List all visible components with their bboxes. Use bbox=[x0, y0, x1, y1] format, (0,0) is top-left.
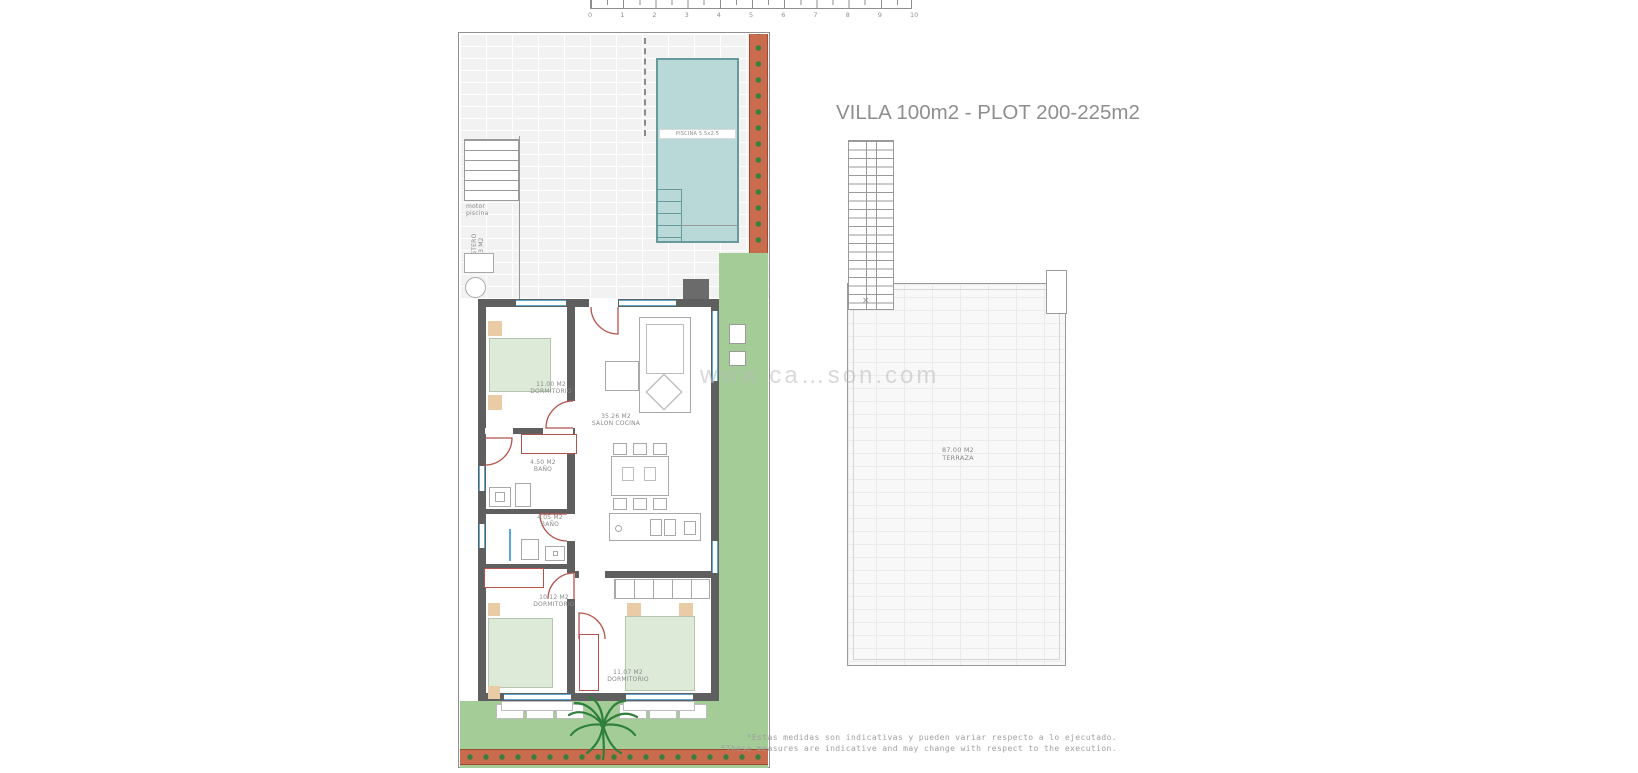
room-area: 11.07 M2 bbox=[593, 669, 663, 676]
disclaimer: *Estas medidas son indicativas y pueden … bbox=[721, 733, 1117, 754]
room-label-dormitorio-1: 11.00 M2 DORMITORIO bbox=[516, 381, 586, 395]
door-arc-bedroom3 bbox=[579, 613, 605, 639]
room-name: BAÑO bbox=[520, 521, 580, 528]
room-area: 11.00 M2 bbox=[516, 381, 586, 388]
scale-bar-numbers: 012345678910 bbox=[590, 0, 912, 20]
terrace-area: 87.00 M2 bbox=[918, 446, 998, 454]
room-area: 35.26 M2 bbox=[576, 413, 656, 420]
room-area: 10.12 M2 bbox=[519, 594, 589, 601]
floorplan-sheet: 012345678910 VILLA 100m2 - PLOT 200-225m… bbox=[0, 0, 1638, 773]
watermark: www.ca…son.com bbox=[700, 362, 939, 390]
door-arc-bath1 bbox=[485, 438, 512, 465]
room-name: BAÑO bbox=[513, 466, 573, 473]
stair-stringer bbox=[866, 141, 867, 309]
scale-number: 9 bbox=[878, 11, 882, 19]
scale-number: 6 bbox=[781, 11, 785, 19]
door-arc-entrance bbox=[591, 307, 618, 334]
terrace-name: TERRAZA bbox=[918, 454, 998, 462]
room-area: 4.05 M2 bbox=[520, 514, 580, 521]
scale-number: 4 bbox=[717, 11, 721, 19]
ground-floor-plan: PISCINA 5.5x2.5 motor piscina TRASTERO 2… bbox=[458, 32, 770, 768]
door-arc-bedroom1 bbox=[546, 401, 573, 428]
stair-stringer bbox=[876, 141, 877, 309]
terrace-step-notch bbox=[1046, 270, 1067, 314]
scale-number: 1 bbox=[620, 11, 624, 19]
roof-plan-terrace: 87.00 M2 TERRAZA bbox=[847, 283, 1066, 666]
scale-number: 7 bbox=[813, 11, 817, 19]
scale-number: 2 bbox=[652, 11, 656, 19]
stair-direction-mark: × bbox=[862, 296, 870, 306]
terrace-inner-line bbox=[853, 289, 1060, 660]
scale-number: 10 bbox=[910, 11, 918, 19]
room-label-dormitorio-3: 11.07 M2 DORMITORIO bbox=[593, 669, 663, 683]
room-label-bano-1: 4.50 M2 BAÑO bbox=[513, 459, 573, 473]
disclaimer-line-en: *These measures are indicative and may c… bbox=[721, 744, 1117, 755]
room-name: DORMITORIO bbox=[593, 676, 663, 683]
terrace-label: 87.00 M2 TERRAZA bbox=[918, 446, 998, 462]
room-area: 4.50 M2 bbox=[513, 459, 573, 466]
page-title: VILLA 100m2 - PLOT 200-225m2 bbox=[836, 101, 1140, 125]
room-label-dormitorio-2: 10.12 M2 DORMITORIO bbox=[519, 594, 589, 608]
scale-number: 3 bbox=[685, 11, 689, 19]
roof-stairs bbox=[848, 140, 894, 310]
disclaimer-line-es: *Estas medidas son indicativas y pueden … bbox=[721, 733, 1117, 744]
room-name: SALON COCINA bbox=[576, 420, 656, 427]
door-arcs bbox=[459, 33, 771, 769]
scale-number: 8 bbox=[846, 11, 850, 19]
scale-number: 5 bbox=[749, 11, 753, 19]
room-label-salon-cocina: 35.26 M2 SALON COCINA bbox=[576, 413, 656, 427]
room-name: DORMITORIO bbox=[516, 388, 586, 395]
scale-number: 0 bbox=[588, 11, 592, 19]
palm-tree bbox=[565, 695, 641, 763]
room-label-bano-2: 4.05 M2 BAÑO bbox=[520, 514, 580, 528]
room-name: DORMITORIO bbox=[519, 601, 589, 608]
